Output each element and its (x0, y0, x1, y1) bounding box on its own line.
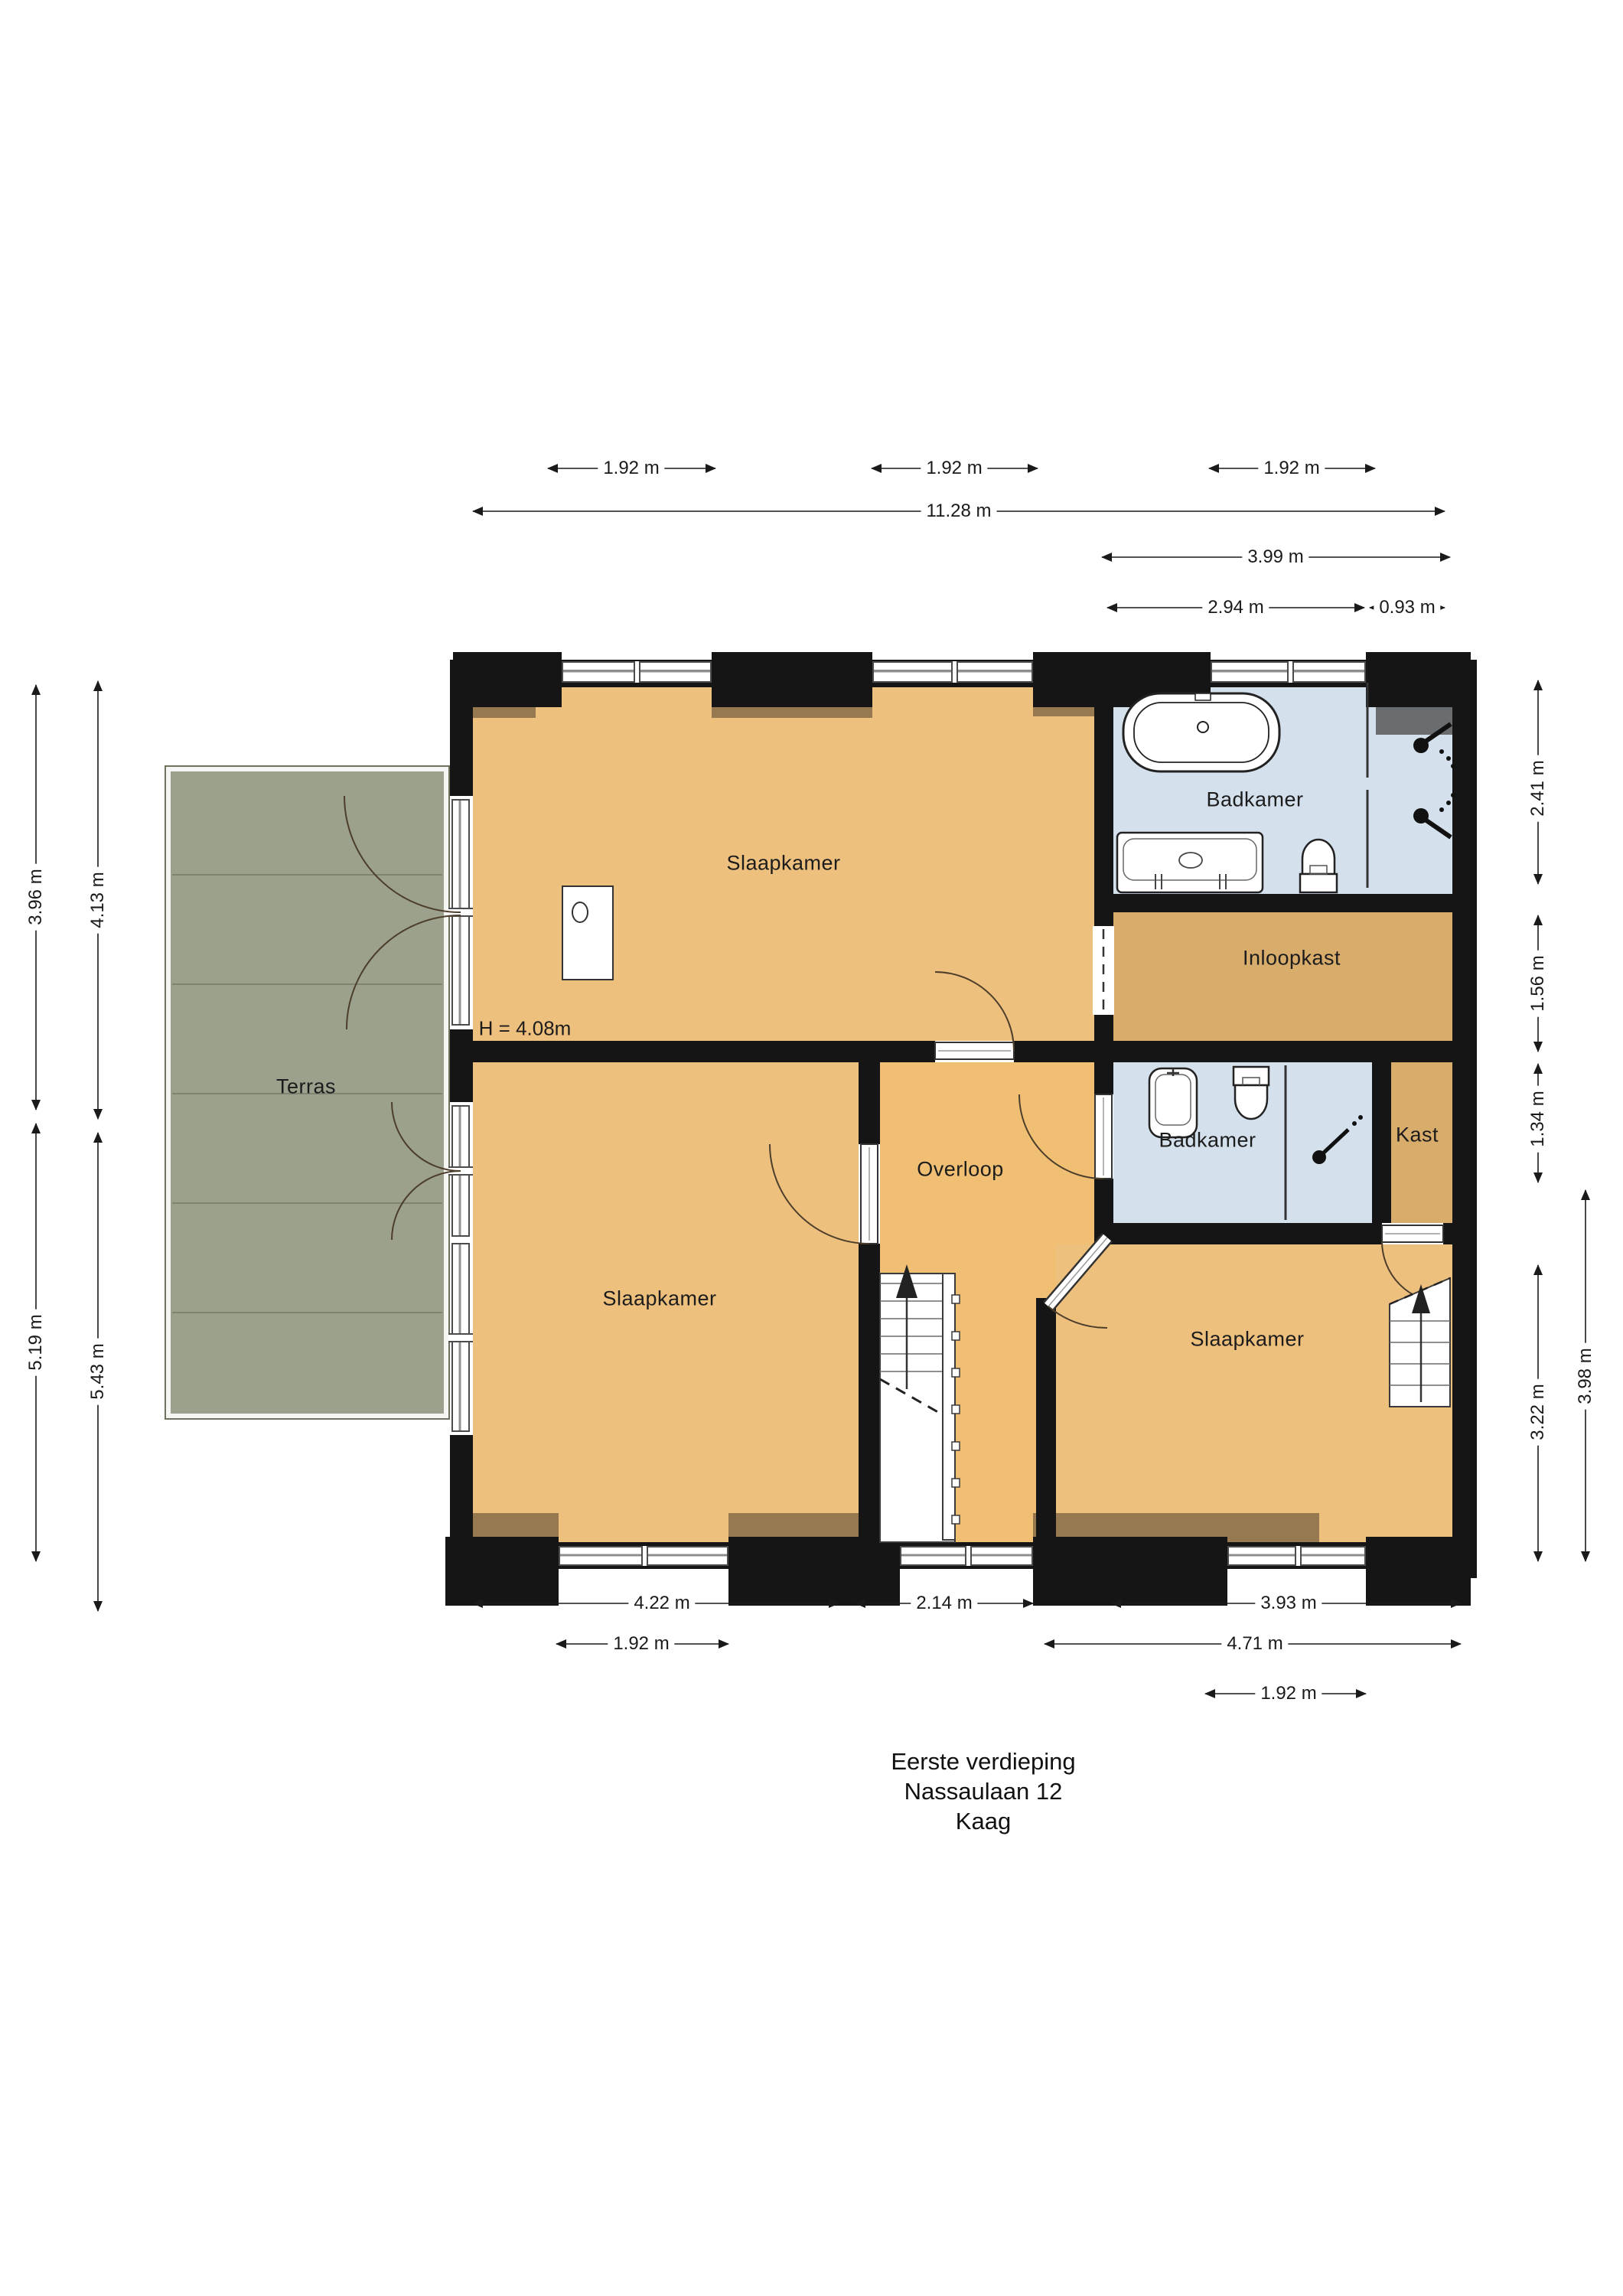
room-label: Kast (1396, 1124, 1439, 1147)
room-label: Slaapkamer (726, 852, 840, 876)
room-label: Badkamer (1206, 788, 1303, 812)
room-label: Overloop (917, 1158, 1004, 1182)
room-label: Slaapkamer (1190, 1328, 1304, 1352)
room-label: Badkamer (1159, 1129, 1256, 1153)
dimension-label: 2.41 m (1527, 755, 1549, 821)
cabinet-icon (562, 886, 613, 980)
ceiling-height-note: H = 4.08m (479, 1017, 572, 1041)
dimension-label: 4.13 m (87, 866, 109, 933)
door-bedroom-right-diagonal (1048, 1238, 1107, 1328)
dimension-label: 0.93 m (1374, 597, 1440, 618)
room-label: Inloopkast (1243, 947, 1341, 970)
dimension-label: 1.92 m (608, 1633, 674, 1655)
sliding-door-closet (1093, 926, 1114, 1015)
shower-icon (1312, 1115, 1363, 1164)
vanity-icon (1117, 833, 1263, 892)
dimension-label: 1.34 m (1527, 1085, 1549, 1152)
dimension-label: 3.96 m (25, 863, 47, 930)
room-label: Terras (276, 1075, 336, 1099)
dimension-label: 3.93 m (1255, 1593, 1322, 1614)
dimension-label: 1.92 m (1258, 458, 1325, 479)
floor-plan: H = 4.08m SlaapkamerBadkamerInloopkastBa… (0, 0, 1623, 2296)
door-bedroom-left (770, 1144, 878, 1244)
dimension-label: 2.14 m (911, 1593, 977, 1614)
dimension-label: 1.92 m (598, 458, 664, 479)
dimension-label: 1.92 m (921, 458, 987, 479)
staircase-main (880, 1264, 960, 1542)
door-bathroom-small (1019, 1094, 1112, 1179)
door-top-bedroom (935, 972, 1014, 1059)
terrace-door-upper (344, 796, 461, 1029)
toilet-icon (1300, 840, 1337, 892)
title-line: Kaag (754, 1806, 1213, 1836)
shower-icon (1413, 724, 1455, 768)
dimension-label: 2.94 m (1202, 597, 1269, 618)
sink-icon (1149, 1068, 1197, 1137)
dimension-arrows (36, 468, 1586, 1694)
toilet-icon (1234, 1067, 1269, 1119)
dimension-label: 11.28 m (921, 501, 997, 522)
dimension-label: 4.22 m (628, 1593, 695, 1614)
dimension-label: 4.71 m (1221, 1633, 1288, 1655)
plan-title: Eerste verdiepingNassaulaan 12Kaag (754, 1746, 1213, 1836)
staircase-attic (1390, 1278, 1450, 1407)
dimension-label: 3.22 m (1527, 1378, 1549, 1445)
dimension-label: 3.99 m (1242, 546, 1309, 568)
title-line: Nassaulaan 12 (754, 1776, 1213, 1806)
terrace-door-lower (392, 1102, 461, 1240)
title-line: Eerste verdieping (754, 1746, 1213, 1776)
shower-icon (1413, 793, 1455, 837)
plan-graphics (0, 0, 1623, 2296)
bathtub-icon (1123, 693, 1279, 771)
dimension-label: 5.43 m (87, 1338, 109, 1404)
dimension-label: 3.98 m (1575, 1342, 1596, 1409)
dimension-label: 5.19 m (25, 1309, 47, 1375)
room-label: Slaapkamer (602, 1287, 716, 1311)
dimension-label: 1.56 m (1527, 950, 1549, 1016)
dimension-label: 1.92 m (1255, 1683, 1322, 1704)
